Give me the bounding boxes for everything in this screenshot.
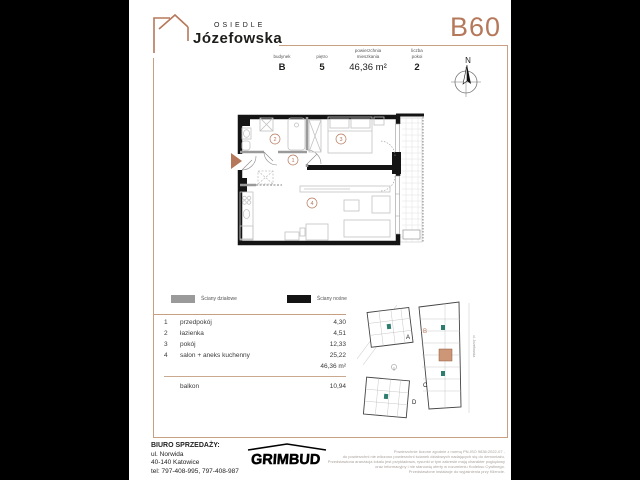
balcony-row: balkon 10,94 [164, 381, 346, 392]
site-building-a [367, 307, 413, 347]
total-area-row: 46,36 m² [164, 361, 346, 372]
info-budynek: budynek B [259, 47, 305, 73]
disclaimer-block: Powierzchnie liczone zgodnie z normą PN-… [325, 449, 505, 474]
estate-logo-house-icon [151, 9, 191, 55]
sales-office-title: BIURO SPRZEDAŻY: [151, 442, 239, 451]
room-1-name: przedpokój [180, 319, 333, 326]
wall-legend: Ściany działowe Ściany nośne [171, 295, 347, 303]
info-powierzchnia: powierzchnia mieszkania 46,36 m² [339, 47, 397, 73]
site-building-bc [419, 302, 461, 409]
estate-name-line2: Józefowska [193, 30, 303, 47]
compass-north-label: N [465, 56, 471, 65]
bedroom-bearing-wall [307, 165, 395, 170]
room-marker-2: 2 [273, 137, 276, 143]
site-label-a: A [406, 335, 410, 341]
bedroom-balcony-door [396, 124, 400, 156]
legend-divider-line [153, 314, 346, 315]
floor-plan: 1 2 3 4 [230, 108, 426, 250]
info-budynek-value: B [279, 62, 286, 73]
info-liczba-pokoi-value: 2 [414, 62, 419, 73]
balcony-area: 10,94 [330, 383, 346, 390]
site-plan: A D B C ul. Józefowska [357, 297, 507, 427]
tree-icon [391, 364, 396, 371]
sales-office-block: BIURO SPRZEDAŻY: ul. Norwida 40-140 Kato… [151, 442, 239, 476]
builder-logo: GRIMBUD [245, 441, 329, 471]
partition-wall-swatch [171, 295, 195, 303]
room-2-no: 2 [164, 330, 180, 337]
site-street-label: ul. Józefowska [472, 335, 476, 357]
balcony-planter [403, 230, 420, 239]
room-2-area: 4,51 [333, 330, 346, 337]
builder-logo-roof-icon [248, 444, 326, 450]
table-row: 1 przedpokój 4,30 [164, 317, 346, 328]
bearing-wall-swatch [287, 295, 311, 303]
partition-wall-label: Ściany działowe [201, 296, 237, 302]
site-label-b: B [423, 329, 427, 335]
info-liczba-pokoi: liczba pokoi 2 [397, 47, 437, 73]
bearing-wall-label: Ściany nośne [317, 296, 347, 302]
balcony-area [400, 117, 423, 243]
info-powierzchnia-value: 46,36 m² [349, 62, 387, 73]
room-2-name: łazienka [180, 330, 333, 337]
disclaimer-line: Przedstawione instalacje do wyjaśnienia … [325, 469, 505, 474]
estate-logo-text: OSIEDLE Józefowska [193, 22, 303, 47]
site-label-c: C [423, 383, 428, 389]
estate-name-line1: OSIEDLE [214, 22, 303, 29]
room-1-area: 4,30 [333, 319, 346, 326]
frame-bottom-line [153, 437, 508, 438]
site-label-d: D [412, 400, 417, 406]
builder-logo-text: GRIMBUD [251, 452, 321, 468]
sales-office-city: 40-140 Katowice [151, 459, 239, 468]
total-area-value: 46,36 m² [320, 363, 346, 370]
info-pietro-label: piętro [316, 47, 327, 59]
livingroom-windows [396, 176, 400, 234]
room-table: 1 przedpokój 4,30 2 łazienka 4,51 3 pokó… [164, 317, 346, 392]
room-4-name: salon + aneks kuchenny [180, 352, 330, 359]
unit-info-row: budynek B piętro 5 powierzchnia mieszkan… [259, 47, 437, 73]
frame-left-line [153, 58, 154, 437]
header-rule-line [279, 45, 508, 46]
table-row: 4 salon + aneks kuchenny 25,22 [164, 350, 346, 361]
sales-office-street: ul. Norwida [151, 451, 239, 460]
room-3-name: pokój [180, 341, 330, 348]
unit-code: B60 [450, 12, 501, 43]
flyer-stage: OSIEDLE Józefowska B60 budynek B piętro … [0, 0, 640, 480]
info-powierzchnia-label: powierzchnia mieszkania [348, 47, 388, 59]
table-divider [164, 376, 346, 377]
room-3-no: 3 [164, 341, 180, 348]
balcony-name: balkon [180, 383, 330, 390]
room-4-no: 4 [164, 352, 180, 359]
flyer-page: OSIEDLE Józefowska B60 budynek B piętro … [129, 0, 511, 480]
info-budynek-label: budynek [273, 47, 290, 59]
sales-office-phone: tel: 797-408-995, 797-408-987 [151, 468, 239, 477]
table-row: 2 łazienka 4,51 [164, 328, 346, 339]
room-4-area: 25,22 [330, 352, 346, 359]
site-highlighted-unit [439, 349, 452, 361]
frame-right-line [507, 45, 508, 437]
info-liczba-pokoi-label: liczba pokoi [406, 47, 428, 59]
room-marker-1: 1 [291, 158, 294, 164]
info-pietro: piętro 5 [305, 47, 339, 73]
room-1-no: 1 [164, 319, 180, 326]
room-marker-3: 3 [339, 137, 342, 143]
table-row: 3 pokój 12,33 [164, 339, 346, 350]
furniture [240, 117, 390, 240]
compass-icon: N [447, 54, 485, 98]
site-building-d [363, 377, 409, 418]
room-3-area: 12,33 [330, 341, 346, 348]
room-marker-4: 4 [310, 201, 313, 207]
info-pietro-value: 5 [319, 62, 324, 73]
